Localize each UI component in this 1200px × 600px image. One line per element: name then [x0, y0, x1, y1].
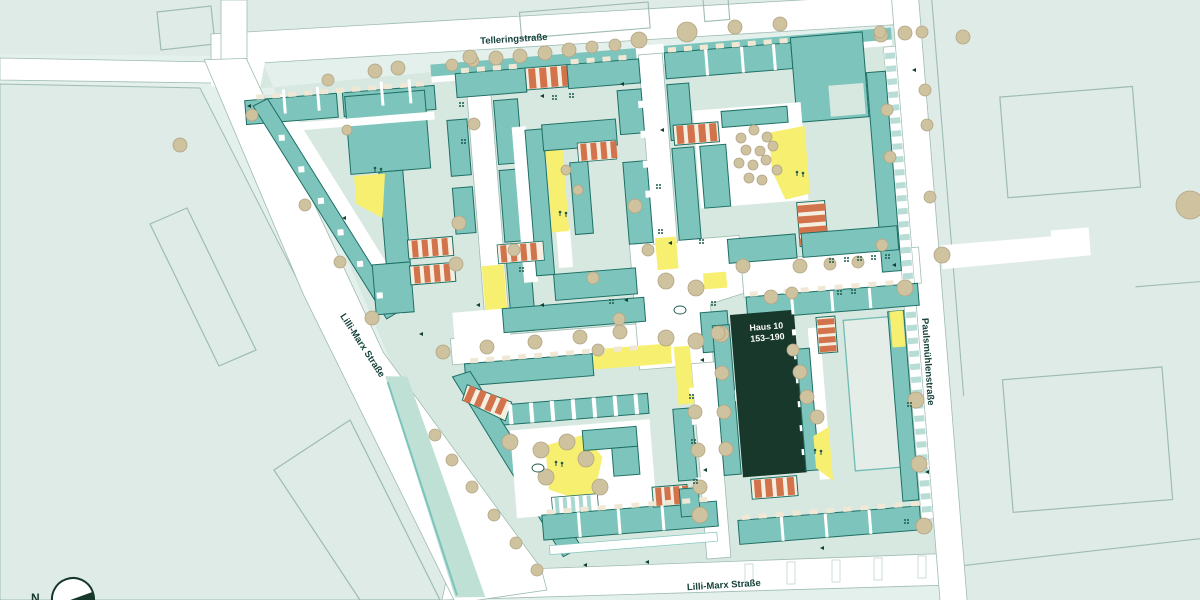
svg-text:N: N — [31, 591, 40, 600]
